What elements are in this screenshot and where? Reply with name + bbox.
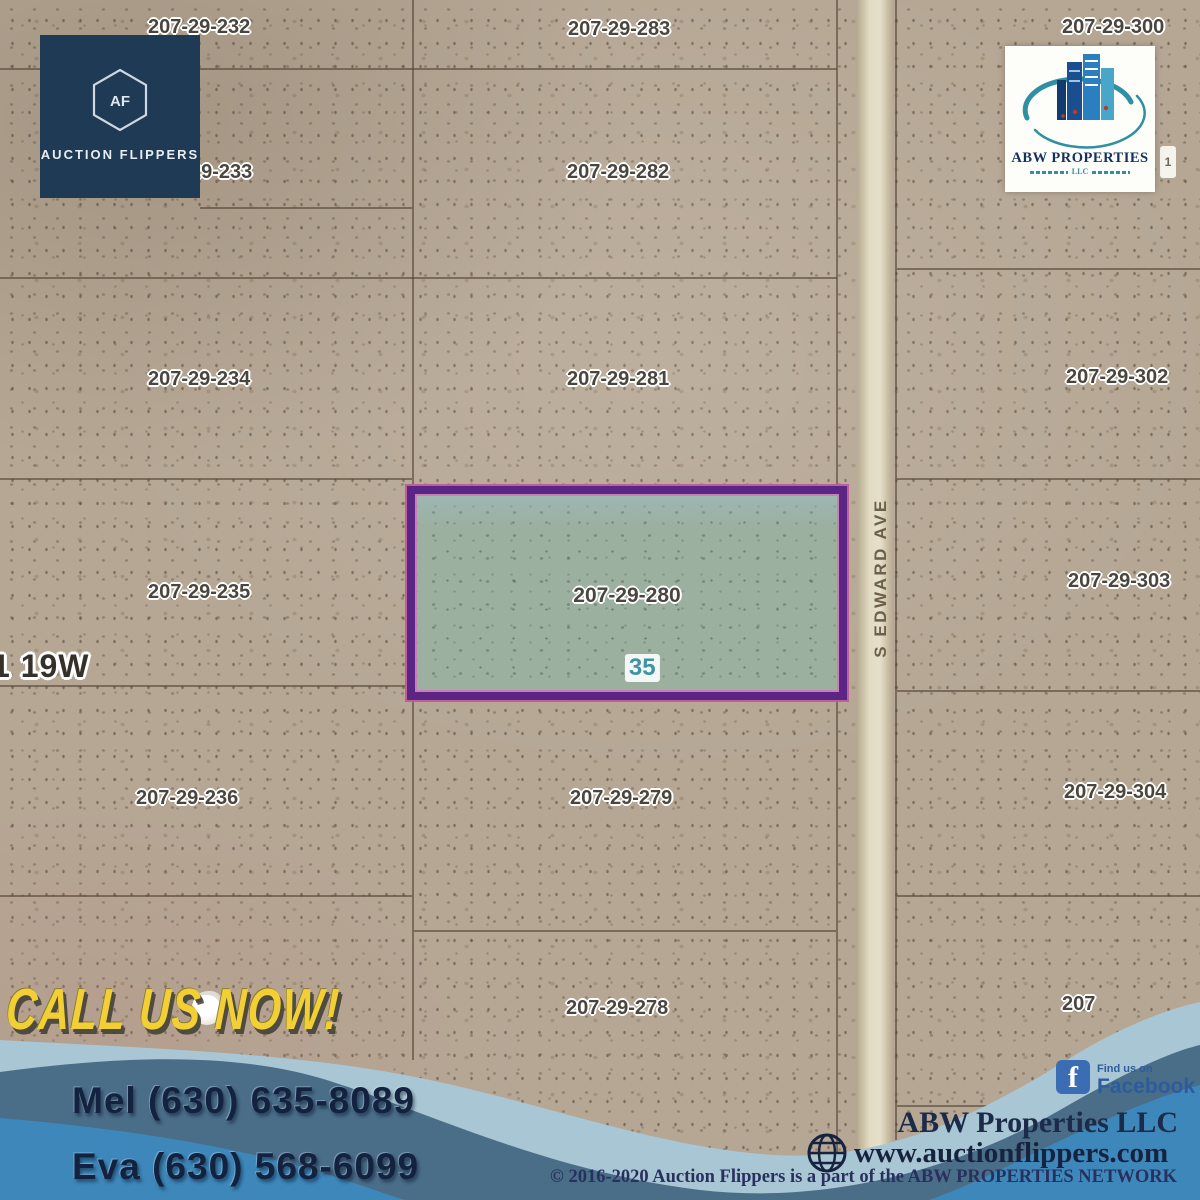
grid-line	[200, 207, 412, 209]
facebook-badge[interactable]: f Find us on Facebook	[1056, 1060, 1195, 1098]
parcel-label: 207-29-304	[1064, 781, 1166, 804]
call-us-now-headline: CALL US NOW!	[5, 976, 343, 1043]
abw-logo-sub: LLC	[1005, 167, 1155, 176]
parcel-label: 207-29-281	[567, 368, 669, 391]
abw-logo-name: ABW PROPERTIES	[1005, 150, 1155, 167]
parcel-label: 207-29-235	[148, 581, 250, 604]
svg-text:AF: AF	[110, 93, 130, 110]
facebook-label: Facebook	[1097, 1075, 1195, 1098]
parcel-label: 207-29-236	[136, 787, 238, 810]
parcel-label: 207-29-302	[1066, 366, 1168, 389]
road-name-label: S EDWARD AVE	[871, 473, 891, 683]
grid-line	[0, 895, 412, 897]
listing-flyer: S EDWARD AVE 207-29-280 35 207-29-232207…	[0, 0, 1200, 1200]
highlighted-parcel-number: 207-29-280	[417, 584, 837, 608]
parcel-label: 207-29-283	[568, 18, 670, 41]
grid-line	[0, 685, 412, 687]
parcel-border: 207-29-280 35	[407, 486, 847, 700]
facebook-find-us: Find us on	[1097, 1063, 1195, 1075]
copyright-text: © 2016-2020 Auction Flippers is a part o…	[550, 1167, 1184, 1188]
buildings-swoosh-icon	[1005, 46, 1155, 150]
grid-line	[897, 690, 1200, 692]
website-url: www.auctionflippers.com	[854, 1137, 1168, 1170]
phone-eva[interactable]: Eva (630) 568-6099	[72, 1146, 419, 1188]
partial-parcel-label: 1	[1160, 146, 1176, 178]
grid-line	[895, 0, 897, 1140]
parcel-label: 207-29-234	[148, 368, 250, 391]
abw-properties-logo: ABW PROPERTIES LLC	[1005, 46, 1155, 192]
grid-line	[0, 478, 412, 480]
grid-line	[897, 478, 1200, 480]
auction-flippers-logo: AF AUCTION FLIPPERS	[40, 35, 200, 198]
hexagon-icon: AF	[90, 67, 150, 133]
lot-number: 35	[625, 654, 660, 682]
auction-flippers-name: AUCTION FLIPPERS	[40, 147, 200, 162]
parcel-label: 207-29-300	[1062, 16, 1164, 39]
parcel-label: 207-29-282	[567, 161, 669, 184]
parcel-label: 207-29-303	[1068, 570, 1170, 593]
township-range-label: 1 19W	[0, 648, 89, 685]
grid-line	[0, 277, 837, 279]
grid-line	[414, 930, 836, 932]
phone-mel[interactable]: Mel (630) 635-8089	[72, 1080, 415, 1122]
parcel-fill: 207-29-280 35	[415, 494, 839, 692]
grid-line	[897, 268, 1200, 270]
parcel-label: 207-29-279	[570, 787, 672, 810]
highlighted-parcel[interactable]: 207-29-280 35	[405, 484, 849, 702]
facebook-icon: f	[1056, 1060, 1090, 1094]
grid-line	[897, 895, 1200, 897]
